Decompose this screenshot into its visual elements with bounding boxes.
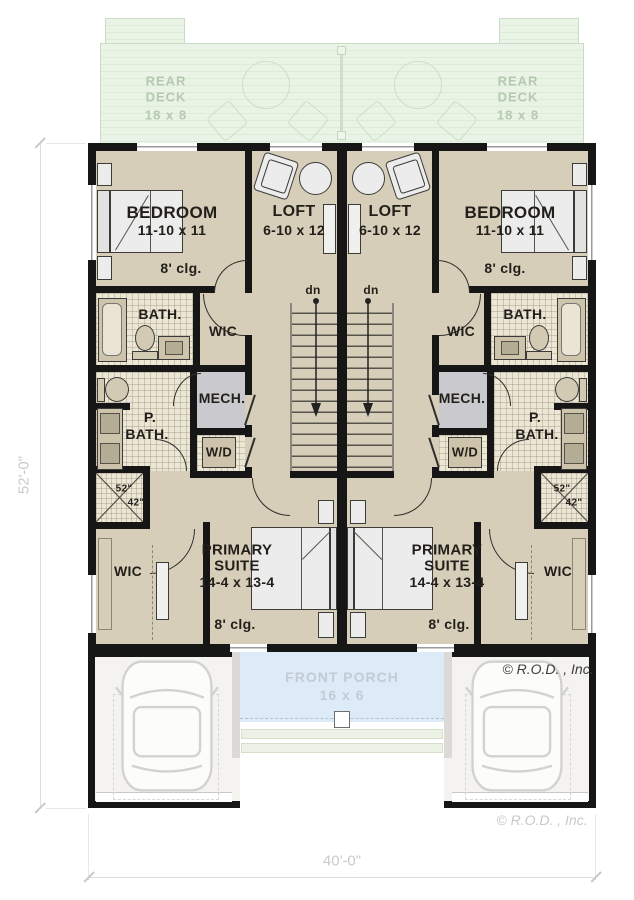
floor-plan: REAR DECK 18 x 8 REAR DECK 18 x 8 FRONT xyxy=(0,0,634,900)
nightstand xyxy=(97,256,112,280)
nightstand xyxy=(318,500,334,524)
sliding-door xyxy=(270,143,322,151)
window xyxy=(88,185,96,260)
car-icon xyxy=(462,656,572,796)
toilet-icon xyxy=(135,325,155,351)
dresser xyxy=(156,562,169,620)
room-size-primary: 14-4 x 13-4 xyxy=(410,574,485,590)
toilet-tank xyxy=(579,378,587,402)
sink-basin xyxy=(100,443,120,464)
room-label-loft: LOFT xyxy=(273,203,316,221)
toilet-tank xyxy=(132,351,158,360)
stair-rail xyxy=(290,303,292,471)
room-label-bedroom: BEDROOM xyxy=(127,203,218,223)
sliding-door xyxy=(362,143,414,151)
nightstand xyxy=(318,612,334,638)
shower-depth: 42" xyxy=(566,498,583,509)
window xyxy=(588,575,596,633)
room-size-bedroom: 11-10 x 11 xyxy=(476,222,544,238)
patio-table-icon xyxy=(394,61,442,109)
closet-rod xyxy=(152,545,153,640)
copyright-plan: © R.O.D. , Inc. xyxy=(502,661,593,677)
room-label-primary-1: PRIMARY xyxy=(412,542,483,559)
porch-edge-left xyxy=(232,652,240,758)
wall xyxy=(432,428,487,435)
room-label-primary-1: PRIMARY xyxy=(202,542,273,559)
extension-line xyxy=(595,814,596,880)
deck-divider xyxy=(340,48,343,140)
room-label-loft: LOFT xyxy=(369,203,412,221)
toilet-tank xyxy=(97,378,105,402)
down-arrow-icon xyxy=(361,297,375,423)
wall xyxy=(197,428,252,435)
window xyxy=(230,644,267,652)
ceiling-note: 8' clg. xyxy=(484,260,525,276)
ceiling-note: 8' clg. xyxy=(428,616,469,632)
toilet-icon xyxy=(555,377,579,402)
room-label-bedroom: BEDROOM xyxy=(465,203,556,223)
stair-rail xyxy=(392,303,394,471)
bathtub-basin xyxy=(102,303,122,356)
room-label-pbath-2: BATH. xyxy=(515,426,558,442)
deck-label-right-1: REAR xyxy=(498,74,539,89)
wall xyxy=(245,335,252,365)
deck-post-icon xyxy=(337,46,346,55)
ceiling-note: 8' clg. xyxy=(160,260,201,276)
porch-label: FRONT PORCH xyxy=(285,669,399,685)
room-label-pbath-1: P. xyxy=(144,409,156,425)
porch-size: 16 x 6 xyxy=(320,687,365,703)
loft-table xyxy=(352,162,385,195)
party-wall xyxy=(337,143,347,652)
wall xyxy=(534,522,596,529)
copyright-outer: © R.O.D. , Inc. xyxy=(496,812,587,828)
dresser xyxy=(323,204,336,254)
sink-basin xyxy=(501,341,519,355)
wall xyxy=(290,471,337,478)
wall xyxy=(469,286,588,293)
bed-headboard xyxy=(330,527,337,610)
wall xyxy=(432,365,588,372)
nightstand xyxy=(572,256,587,280)
sink-basin xyxy=(564,443,584,464)
sink-basin xyxy=(165,341,183,355)
bed xyxy=(354,527,433,610)
sink-basin xyxy=(100,413,120,434)
toilet-tank xyxy=(526,351,552,360)
wall xyxy=(432,471,494,478)
nightstand xyxy=(350,500,366,524)
window xyxy=(137,143,197,151)
room-label-wd: W/D xyxy=(206,445,232,460)
room-label-wic: WIC xyxy=(209,323,237,339)
porch-column xyxy=(334,711,350,728)
room-size-bedroom: 11-10 x 11 xyxy=(138,222,206,238)
dresser xyxy=(515,562,528,620)
bed-headboard xyxy=(574,190,587,253)
nightstand xyxy=(97,163,112,186)
wall xyxy=(96,286,215,293)
down-arrow-icon xyxy=(309,297,323,423)
deck-label-right-2: DECK xyxy=(498,90,539,105)
wall xyxy=(96,365,252,372)
dimension-label-side: 52'-0" xyxy=(16,456,33,494)
porch-step xyxy=(241,743,443,753)
bed-sheet-line xyxy=(301,528,302,609)
rear-stoop-left xyxy=(105,18,185,45)
deck-label-left-2: DECK xyxy=(146,90,187,105)
stairs-down-label: dn xyxy=(363,283,378,297)
bed-headboard xyxy=(97,190,110,253)
window xyxy=(487,143,547,151)
closet-shelf xyxy=(98,538,112,630)
wall xyxy=(432,335,439,365)
toilet-icon xyxy=(105,377,129,402)
shower-width: 52" xyxy=(554,484,571,495)
deck-size-right: 18 x 8 xyxy=(497,108,539,123)
dimension-label-bottom: 40'-0" xyxy=(323,853,361,870)
wall xyxy=(347,471,394,478)
deck-label-left-1: REAR xyxy=(146,74,187,89)
wall xyxy=(245,365,252,395)
extension-line xyxy=(88,814,89,880)
closet-shelf xyxy=(572,538,586,630)
room-label-primary-2: SUITE xyxy=(214,558,260,575)
wall xyxy=(534,466,541,529)
stairs-down-label: dn xyxy=(305,283,320,297)
room-label-wic: WIC xyxy=(447,323,475,339)
wall xyxy=(88,522,150,529)
ceiling-note: 8' clg. xyxy=(214,616,255,632)
room-size-primary: 14-4 x 13-4 xyxy=(200,574,275,590)
window xyxy=(417,644,454,652)
shower-depth: 42" xyxy=(128,498,145,509)
room-label-pbath-2: BATH. xyxy=(125,426,168,442)
bed xyxy=(251,527,330,610)
room-size-loft: 6-10 x 12 xyxy=(263,222,325,238)
porch-edge-right xyxy=(444,652,452,758)
room-label-bath: BATH. xyxy=(138,306,181,322)
closet-rod xyxy=(531,545,532,640)
bed-sheet-line xyxy=(382,528,383,609)
deck-post-icon xyxy=(337,131,346,140)
room-size-loft: 6-10 x 12 xyxy=(359,222,421,238)
window xyxy=(88,575,96,633)
nightstand xyxy=(572,163,587,186)
extension-line xyxy=(46,808,86,809)
porch-step xyxy=(241,729,443,739)
window xyxy=(588,185,596,260)
deck-size-left: 18 x 8 xyxy=(145,108,187,123)
sink-basin xyxy=(564,413,584,434)
dimension-line-bottom xyxy=(88,877,596,878)
extension-line xyxy=(46,143,86,144)
room-label-wic-lower: WIC xyxy=(544,563,572,579)
room-label-primary-2: SUITE xyxy=(424,558,470,575)
room-label-mech: MECH. xyxy=(439,390,486,406)
wall xyxy=(193,293,200,365)
patio-table-icon xyxy=(242,61,290,109)
toilet-icon xyxy=(529,325,549,351)
bathtub-basin xyxy=(561,303,581,356)
car-icon xyxy=(112,656,222,796)
nightstand xyxy=(350,612,366,638)
room-label-mech: MECH. xyxy=(199,390,246,406)
wall xyxy=(484,293,491,365)
shower-width: 52" xyxy=(116,484,133,495)
bed-headboard xyxy=(347,527,354,610)
room-label-wd: W/D xyxy=(452,445,478,460)
room-label-wic-lower: WIC xyxy=(114,563,142,579)
room-label-bath: BATH. xyxy=(503,306,546,322)
dimension-line-side xyxy=(40,143,41,809)
room-label-pbath-1: P. xyxy=(529,409,541,425)
loft-table xyxy=(299,162,332,195)
wall xyxy=(190,471,252,478)
rear-stoop-right xyxy=(499,18,579,45)
